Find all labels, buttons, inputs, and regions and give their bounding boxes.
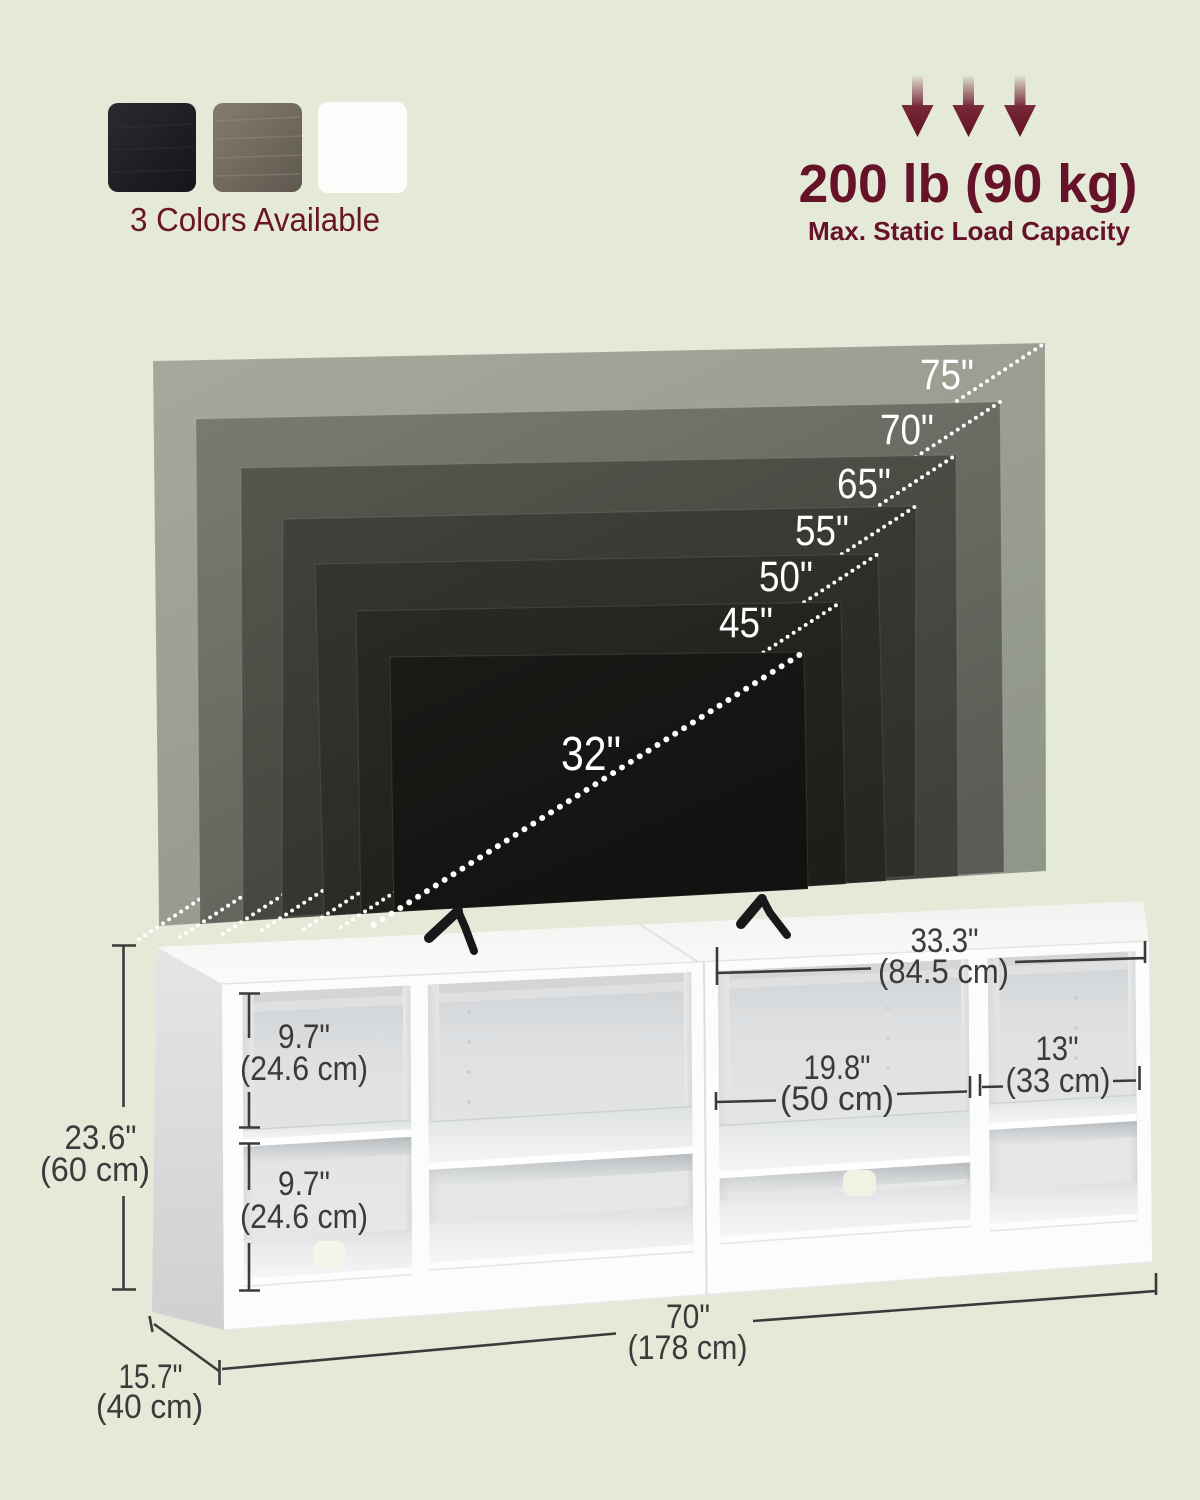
svg-text:50": 50" — [759, 553, 813, 601]
svg-text:55": 55" — [795, 507, 849, 555]
svg-text:200 lb (90 kg): 200 lb (90 kg) — [799, 155, 1138, 214]
svg-text:65": 65" — [837, 460, 891, 508]
svg-text:(33 cm): (33 cm) — [1006, 1062, 1111, 1100]
svg-text:32": 32" — [561, 728, 621, 781]
svg-text:(24.6 cm): (24.6 cm) — [240, 1050, 368, 1088]
svg-text:(24.6 cm): (24.6 cm) — [240, 1198, 368, 1236]
svg-text:75": 75" — [920, 351, 974, 399]
svg-text:45": 45" — [719, 599, 773, 647]
svg-text:(50 cm): (50 cm) — [780, 1080, 894, 1118]
svg-text:Max. Static Load Capacity: Max. Static Load Capacity — [808, 216, 1131, 246]
svg-text:70": 70" — [880, 406, 934, 454]
svg-text:(60 cm): (60 cm) — [40, 1151, 150, 1189]
svg-text:(84.5 cm): (84.5 cm) — [878, 953, 1009, 991]
svg-text:(178 cm): (178 cm) — [628, 1329, 748, 1367]
svg-text:3 Colors Available: 3 Colors Available — [130, 201, 380, 238]
svg-text:(40 cm): (40 cm) — [96, 1388, 203, 1426]
